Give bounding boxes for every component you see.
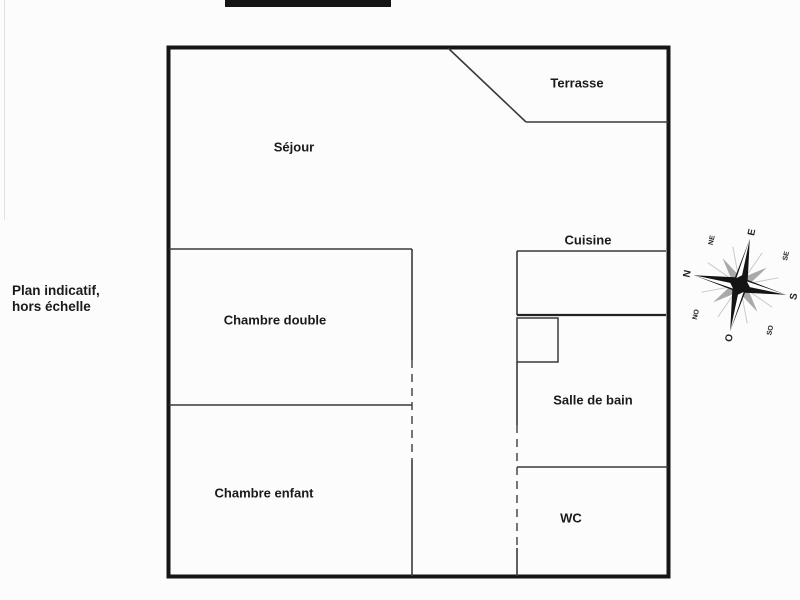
- compass-label-ne: NE: [708, 234, 717, 245]
- room-label-cuisine: Cuisine: [565, 233, 612, 248]
- room-label-salle-de-bain: Salle de bain: [553, 393, 632, 408]
- compass-label-no: NO: [692, 308, 701, 320]
- plan-disclaimer-line1: Plan indicatif,: [12, 283, 100, 299]
- compass-rose-group: N E S O NE SE SO NO: [680, 225, 800, 345]
- compass-main-star: [684, 229, 795, 340]
- room-label-chambre-enfant: Chambre enfant: [215, 486, 314, 501]
- compass-label-se: SE: [782, 250, 791, 261]
- room-label-sejour: Séjour: [274, 140, 314, 155]
- compass-label-n: N: [682, 269, 694, 278]
- terrasse-diagonal-wall: [448, 48, 526, 122]
- compass-rose: N E S O NE SE SO NO: [680, 225, 800, 345]
- room-label-wc: WC: [560, 511, 582, 526]
- room-label-chambre-double: Chambre double: [224, 313, 327, 328]
- room-label-terrasse: Terrasse: [550, 76, 603, 91]
- compass-label-e: E: [746, 228, 758, 237]
- compass-label-s: S: [788, 292, 800, 301]
- bathroom-fixture-square: [517, 318, 558, 362]
- compass-label-so: SO: [766, 324, 775, 336]
- floorplan-page: Terrasse Séjour Cuisine Chambre double S…: [0, 0, 800, 600]
- plan-disclaimer-line2: hors échelle: [12, 299, 100, 315]
- plan-disclaimer-note: Plan indicatif, hors échelle: [12, 283, 100, 315]
- compass-label-o: O: [724, 333, 736, 343]
